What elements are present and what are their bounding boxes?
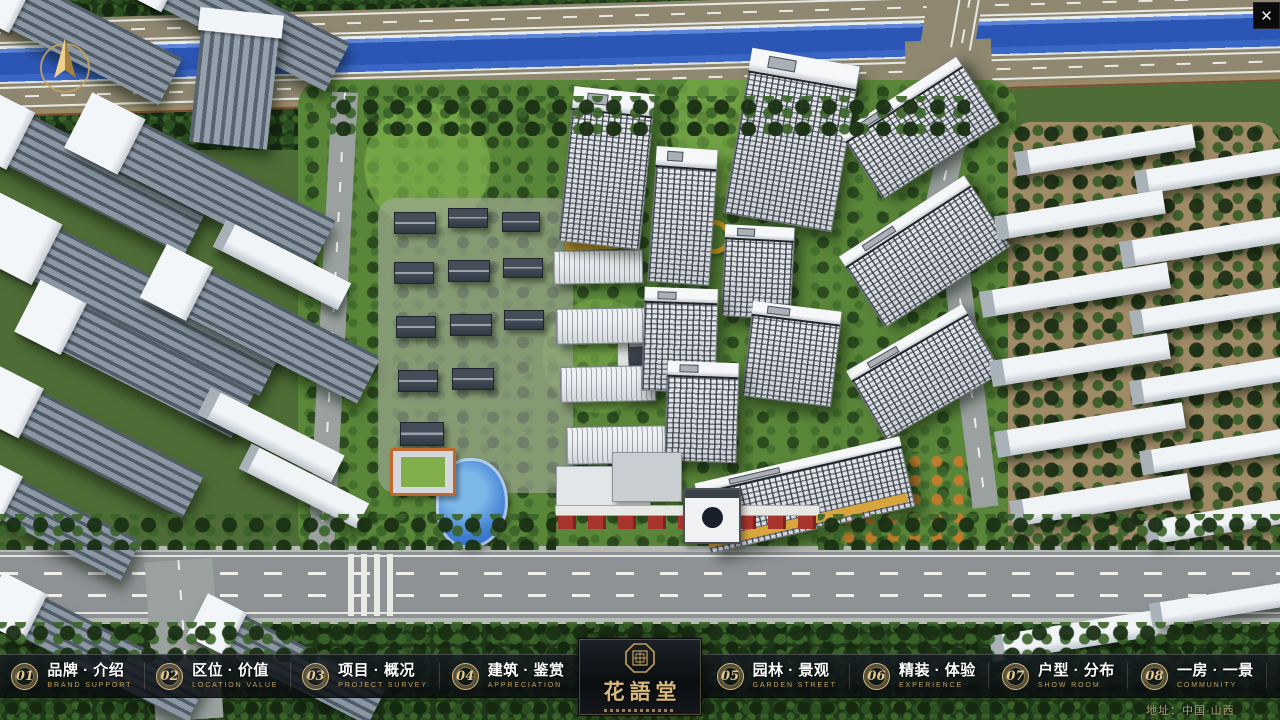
nav-number: 07 [1006, 669, 1024, 684]
nav-label-en: COMMUNITY [1177, 682, 1254, 689]
crosswalk [348, 554, 394, 616]
nav-labels: 园林 · 景观 GARDEN STREET [753, 663, 837, 688]
courtyard-house [400, 422, 444, 446]
brand-title: 花語堂 [599, 676, 682, 706]
courtyard-house [503, 258, 543, 278]
nav-label-en: BRAND SUPPORT [47, 682, 132, 689]
courtyard-house [504, 310, 544, 330]
nav-badge: 06 [863, 663, 890, 690]
nav-labels: 品牌 · 介绍 BRAND SUPPORT [47, 663, 132, 688]
nav-label-cn: 建筑 · 鉴赏 [488, 663, 565, 679]
nav-number: 06 [867, 669, 885, 684]
nav-number: 01 [16, 669, 34, 684]
brand-subtitle-mark [604, 709, 676, 712]
courtyard-house [394, 262, 434, 284]
courtyard-house [448, 260, 490, 282]
nav-label-cn: 区位 · 价值 [192, 663, 278, 679]
lane-marking [0, 555, 1280, 557]
nav-label-cn: 一房 · 一景 [1177, 663, 1254, 679]
building-midrise [556, 307, 651, 345]
nav-item-architecture[interactable]: 04 建筑 · 鉴赏 APPRECIATION [452, 663, 565, 690]
garden-court [401, 457, 445, 487]
courtyard-house [450, 314, 492, 336]
building-slab [189, 10, 280, 149]
nav-labels: 区位 · 价值 LOCATION VALUE [192, 663, 278, 688]
nav-label-cn: 项目 · 概况 [338, 663, 428, 679]
building-tower [741, 301, 842, 407]
octagon-seal-icon [625, 643, 655, 673]
courtyard-house [448, 208, 488, 228]
tree-belt [818, 514, 1280, 550]
nav-badge: 02 [156, 663, 183, 690]
app-window: ✕ 01 品牌 · 介绍 BRAND SUPPORT 02 区位 · 价值 LO… [0, 0, 1280, 720]
courtyard-house [502, 212, 540, 232]
nav-number: 08 [1145, 669, 1163, 684]
nav-label-en: PROJECT SURVEY [338, 682, 428, 689]
nav-item-garden[interactable]: 05 园林 · 景观 GARDEN STREET [717, 663, 837, 690]
nav-badge: 05 [717, 663, 744, 690]
nav-item-brand[interactable]: 01 品牌 · 介绍 BRAND SUPPORT [11, 663, 132, 690]
nav-separator [439, 663, 440, 689]
nav-group-right: 05 园林 · 景观 GARDEN STREET 06 精装 · 体验 EXPE… [704, 655, 1280, 697]
nav-badge: 08 [1141, 663, 1168, 690]
nav-separator [1127, 663, 1128, 689]
gate-emblem [702, 507, 723, 528]
gate-roof [685, 490, 739, 498]
nav-label-en: LOCATION VALUE [192, 682, 278, 689]
address-text: 地址：中国·山西 [1146, 702, 1235, 718]
nav-group-left: 01 品牌 · 介绍 BRAND SUPPORT 02 区位 · 价值 LOCA… [0, 655, 576, 697]
nav-labels: 项目 · 概况 PROJECT SURVEY [338, 663, 428, 688]
nav-badge: 03 [302, 663, 329, 690]
nav-item-floorplan[interactable]: 07 户型 · 分布 SHOW ROOM [1002, 663, 1115, 690]
nav-item-interior[interactable]: 06 精装 · 体验 EXPERIENCE [863, 663, 976, 690]
nav-item-project[interactable]: 03 项目 · 概况 PROJECT SURVEY [302, 663, 428, 690]
nav-label-en: GARDEN STREET [753, 682, 837, 689]
entrance-gate [683, 488, 741, 544]
brand-logo-panel: 花語堂 [578, 638, 702, 716]
nav-item-location[interactable]: 02 区位 · 价值 LOCATION VALUE [156, 663, 278, 690]
courtyard-house [398, 370, 438, 392]
compass-north-icon [34, 32, 96, 98]
nav-label-en: EXPERIENCE [899, 682, 976, 689]
shop-building [612, 452, 682, 502]
nav-number: 03 [307, 669, 325, 684]
nav-label-cn: 精装 · 体验 [899, 663, 976, 679]
nav-label-cn: 园林 · 景观 [753, 663, 837, 679]
nav-separator [849, 663, 850, 689]
nav-separator [144, 663, 145, 689]
building-tower [647, 146, 718, 286]
courtyard-house [396, 316, 436, 338]
nav-labels: 一房 · 一景 COMMUNITY [1177, 663, 1254, 688]
nav-label-en: APPRECIATION [488, 682, 565, 689]
building-tower [664, 361, 739, 463]
nav-item-views[interactable]: 08 一房 · 一景 COMMUNITY [1141, 663, 1254, 690]
nav-number: 04 [456, 669, 474, 684]
road [921, 0, 984, 51]
nav-separator [988, 663, 989, 689]
nav-separator [290, 663, 291, 689]
tree-belt [330, 96, 970, 136]
nav-number: 05 [721, 669, 739, 684]
nav-label-cn: 品牌 · 介绍 [47, 663, 132, 679]
nav-labels: 建筑 · 鉴赏 APPRECIATION [488, 663, 565, 688]
courtyard-house [452, 368, 494, 390]
close-icon: ✕ [1260, 7, 1273, 25]
building-midrise [553, 249, 644, 285]
nav-separator [1266, 663, 1267, 689]
nav-labels: 精装 · 体验 EXPERIENCE [899, 663, 976, 688]
tree-belt [0, 514, 556, 550]
courtyard-house [394, 212, 436, 234]
nav-label-en: SHOW ROOM [1038, 682, 1115, 689]
nav-label-cn: 户型 · 分布 [1038, 663, 1115, 679]
nav-badge: 07 [1002, 663, 1029, 690]
nav-labels: 户型 · 分布 SHOW ROOM [1038, 663, 1115, 688]
close-button[interactable]: ✕ [1253, 2, 1280, 29]
garden-building [390, 448, 456, 496]
nav-badge: 01 [11, 663, 38, 690]
nav-badge: 04 [452, 663, 479, 690]
nav-number: 02 [161, 669, 179, 684]
